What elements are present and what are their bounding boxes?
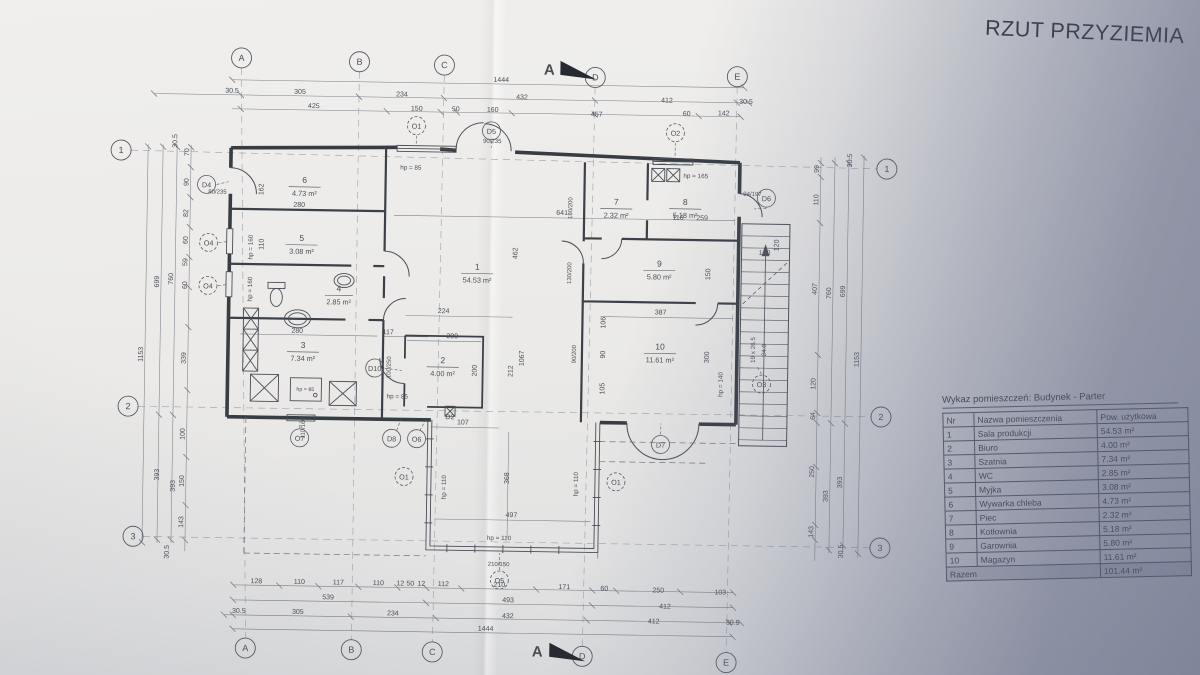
svg-text:160: 160: [487, 107, 499, 114]
svg-text:393: 393: [170, 480, 177, 492]
svg-text:hp = 110: hp = 110: [573, 472, 580, 497]
cell-nr: 2: [943, 440, 974, 455]
svg-text:50: 50: [452, 106, 460, 113]
opening-marker-label: O2: [671, 129, 681, 138]
svg-text:200: 200: [472, 365, 479, 377]
right-dimensions: 99 110 407 120 64 250 143 760 393 699 39…: [808, 153, 864, 558]
svg-text:hp = 140: hp = 140: [717, 372, 724, 397]
svg-text:30.5: 30.5: [172, 134, 179, 148]
svg-text:210/150: 210/150: [488, 562, 510, 568]
svg-text:200: 200: [446, 333, 458, 340]
cell-nr: 8: [945, 524, 976, 539]
svg-text:hp = 85: hp = 85: [387, 393, 409, 400]
svg-text:106: 106: [600, 317, 607, 329]
svg-text:hp = 160: hp = 160: [247, 276, 254, 301]
svg-text:150: 150: [179, 475, 186, 487]
svg-text:110: 110: [373, 580, 384, 587]
svg-text:110: 110: [813, 194, 820, 205]
svg-text:250: 250: [809, 466, 816, 478]
svg-text:393: 393: [154, 469, 161, 481]
svg-text:hp = 110: hp = 110: [441, 474, 448, 499]
opening-marker-label: D6: [762, 194, 771, 203]
svg-text:30.5: 30.5: [232, 608, 246, 615]
svg-text:hp = 110: hp = 110: [487, 535, 512, 542]
svg-text:412: 412: [661, 97, 673, 104]
room-label: 53.08 m²: [285, 233, 317, 256]
grid-col-label: E: [723, 658, 729, 668]
section-marker-bottom: A: [532, 643, 586, 662]
svg-text:300: 300: [704, 351, 711, 363]
svg-text:11.61 m²: 11.61 m²: [646, 355, 675, 364]
opening-marker-label: O1: [611, 478, 621, 487]
grid-col-label: C: [441, 60, 448, 70]
opening-marker-label: D8: [387, 434, 396, 443]
svg-text:90: 90: [600, 351, 607, 359]
svg-text:110: 110: [294, 579, 305, 586]
doors: [226, 119, 763, 461]
svg-text:117: 117: [333, 579, 344, 586]
svg-text:280: 280: [293, 202, 305, 209]
svg-text:30.5: 30.5: [225, 88, 239, 95]
grid-col-label: A: [238, 53, 244, 63]
svg-text:150: 150: [705, 268, 712, 280]
opening-markers: O1 D5 O2 D4 O4 O4 D10 O7 D8 O6 D7 O5 O3 …: [191, 113, 776, 593]
svg-text:hp = 85: hp = 85: [400, 164, 422, 171]
svg-text:180/200: 180/200: [568, 197, 574, 219]
svg-text:4.00 m²: 4.00 m²: [430, 369, 455, 378]
svg-text:305: 305: [292, 609, 304, 616]
total-area: 101.44 m²: [1100, 562, 1191, 578]
svg-text:30.5: 30.5: [164, 545, 171, 559]
svg-text:412: 412: [648, 618, 660, 625]
grid-col-label: C: [429, 647, 436, 657]
opening-marker-label: O3: [757, 380, 767, 389]
grid-row-label: 1: [884, 164, 889, 174]
top-dimensions: 1444 30.5 305 234 432 412 30.5 425 150 5…: [225, 73, 753, 121]
opening-marker-label: D7: [656, 440, 665, 449]
svg-text:493: 493: [502, 597, 514, 604]
svg-text:462: 462: [512, 247, 519, 259]
room-schedule: Wykaz pomieszczeń: Budynek - Parter Nr N…: [942, 389, 1182, 581]
svg-text:1: 1: [475, 262, 480, 272]
svg-text:393: 393: [837, 476, 844, 488]
opening-marker-label: O1: [412, 122, 422, 131]
svg-text:497: 497: [506, 512, 518, 519]
grid-col-label: E: [734, 72, 740, 82]
svg-text:280: 280: [291, 328, 303, 335]
svg-text:234: 234: [387, 610, 399, 617]
svg-text:hp = 165: hp = 165: [683, 173, 708, 180]
cell-nr: 5: [944, 482, 975, 497]
svg-text:60: 60: [683, 111, 691, 118]
svg-text:60: 60: [183, 236, 190, 244]
opening-marker-label: D2: [445, 412, 454, 421]
svg-text:5: 5: [299, 233, 304, 243]
svg-text:7: 7: [614, 197, 619, 207]
grid-row-label: 2: [878, 412, 883, 422]
svg-text:368: 368: [504, 472, 511, 484]
svg-text:1444: 1444: [493, 77, 509, 84]
grid-row-label: 3: [130, 531, 135, 541]
svg-text:30.5: 30.5: [739, 99, 753, 106]
svg-text:8: 8: [683, 197, 688, 207]
svg-text:112: 112: [438, 581, 449, 588]
opening-marker-label: D5: [487, 127, 496, 136]
svg-text:100/250: 100/250: [387, 356, 393, 378]
bottom-dimensions: 128 110 117 110 12 50 12 112 210 171 60 …: [232, 578, 740, 637]
svg-text:3.08 m²: 3.08 m²: [289, 247, 314, 256]
svg-text:30.5: 30.5: [726, 620, 740, 627]
room-label: 72.32 m²: [600, 197, 632, 220]
svg-text:4: 4: [337, 283, 342, 293]
svg-text:30.5: 30.5: [838, 544, 845, 558]
cell-nr: 7: [945, 510, 976, 525]
cell-nr: 10: [946, 552, 977, 567]
svg-text:171: 171: [558, 584, 570, 591]
svg-text:1067: 1067: [519, 350, 526, 366]
svg-text:432: 432: [502, 613, 514, 620]
svg-text:425: 425: [308, 103, 320, 110]
svg-text:6: 6: [302, 175, 307, 185]
svg-text:12: 12: [396, 580, 404, 587]
svg-text:7.34 m²: 7.34 m²: [290, 354, 315, 363]
svg-text:250: 250: [652, 587, 664, 594]
svg-text:224: 224: [438, 308, 450, 315]
svg-text:1153: 1153: [854, 352, 861, 367]
svg-text:19 x 26.5: 19 x 26.5: [750, 336, 757, 363]
exterior-stairs: [739, 224, 790, 447]
svg-text:150: 150: [411, 106, 423, 113]
cell-nr: 4: [944, 468, 975, 483]
grid-row-label: 3: [877, 543, 882, 553]
grid-col-label: B: [348, 645, 354, 655]
svg-text:143: 143: [178, 516, 185, 528]
svg-text:130/200: 130/200: [567, 262, 573, 284]
svg-text:107: 107: [457, 419, 469, 426]
svg-text:hp = 85: hp = 85: [296, 387, 314, 393]
cell-nr: 3: [944, 454, 975, 469]
svg-text:12: 12: [417, 581, 425, 588]
svg-text:116: 116: [672, 215, 683, 222]
svg-text:30.5: 30.5: [847, 154, 854, 168]
opening-marker-label: O4: [204, 238, 214, 247]
room-labels: 154.53 m² 24.00 m² 37.34 m² 42.85 m² 53.…: [284, 175, 702, 382]
cell-nr: 1: [943, 426, 974, 441]
svg-text:412: 412: [659, 604, 671, 611]
svg-text:120: 120: [810, 378, 817, 390]
svg-text:5.80 m²: 5.80 m²: [647, 272, 672, 281]
svg-text:2.32 m²: 2.32 m²: [604, 211, 629, 220]
svg-text:10: 10: [655, 341, 665, 351]
opening-marker-label: D4: [202, 180, 211, 189]
opening-marker-label: O5: [495, 576, 505, 585]
room-label: 64.73 m²: [288, 175, 320, 198]
total-label: Razem: [946, 564, 1100, 581]
svg-text:82: 82: [183, 209, 190, 217]
opening-marker-label: O7: [295, 434, 305, 443]
svg-text:699: 699: [840, 285, 847, 297]
svg-text:162: 162: [258, 183, 265, 195]
svg-text:50: 50: [406, 581, 414, 588]
room-label: 37.34 m²: [287, 340, 319, 363]
svg-text:212: 212: [508, 365, 515, 377]
svg-text:1153: 1153: [138, 347, 145, 362]
svg-text:60: 60: [182, 281, 189, 289]
room-label: 95.80 m²: [643, 258, 675, 281]
grid-row-label: 1: [119, 145, 124, 155]
grid-row-label: 2: [125, 401, 130, 411]
room-label: 24.00 m²: [427, 355, 459, 378]
svg-text:432: 432: [516, 94, 528, 101]
svg-text:234: 234: [396, 91, 408, 98]
opening-marker-label: D10: [368, 364, 381, 373]
inner-dimensions: 162 280 110 280 117 641 462 224 200 200 …: [253, 183, 781, 523]
col-header-nr: Nr: [943, 412, 974, 427]
left-dimensions: 70 90 82 60 59 60 339 100 150 143 699 39…: [135, 133, 192, 558]
svg-text:70: 70: [184, 148, 191, 156]
opening-marker-label: O1: [399, 472, 409, 481]
section-label: A: [532, 644, 543, 661]
svg-text:305: 305: [294, 89, 306, 96]
svg-text:117: 117: [383, 329, 394, 336]
dimension-lines: [138, 75, 869, 641]
svg-text:2.85 m²: 2.85 m²: [326, 297, 351, 306]
opening-marker-label: O6: [412, 435, 422, 444]
svg-text:105: 105: [599, 383, 606, 395]
svg-text:90/200: 90/200: [572, 344, 578, 363]
cell-nr: 6: [945, 496, 976, 511]
svg-text:143: 143: [808, 526, 815, 538]
svg-text:539: 539: [322, 594, 334, 601]
svg-text:120: 120: [774, 239, 781, 251]
svg-text:760: 760: [168, 273, 175, 285]
svg-text:9: 9: [657, 258, 662, 268]
svg-text:760: 760: [826, 287, 833, 299]
svg-text:hp = 160: hp = 160: [247, 234, 254, 259]
svg-text:387: 387: [655, 309, 667, 316]
svg-text:3: 3: [301, 340, 306, 350]
grid-col-label: B: [356, 57, 362, 67]
section-label: A: [544, 62, 555, 79]
room-label: 154.53 m²: [461, 261, 493, 284]
grid-col-label: D: [592, 72, 599, 82]
svg-text:60: 60: [600, 586, 608, 593]
svg-text:393: 393: [823, 490, 830, 502]
svg-text:90: 90: [184, 178, 191, 186]
svg-text:4.73 m²: 4.73 m²: [292, 189, 317, 198]
svg-text:100: 100: [180, 428, 187, 440]
svg-text:407: 407: [812, 283, 819, 295]
svg-text:142: 142: [718, 110, 730, 117]
svg-text:120: 120: [759, 250, 771, 257]
opening-marker-label: O4: [203, 281, 213, 290]
cell-nr: 9: [946, 538, 977, 553]
svg-text:457: 457: [591, 111, 603, 118]
svg-text:24.0: 24.0: [761, 343, 768, 356]
svg-text:339: 339: [181, 352, 188, 364]
svg-text:699: 699: [154, 276, 161, 288]
svg-text:103: 103: [714, 589, 726, 596]
room-schedule-table: Nr Nazwa pomieszczenia Pow. użytkowa 1Sa…: [942, 407, 1192, 582]
svg-text:64: 64: [810, 412, 817, 420]
svg-text:54.53 m²: 54.53 m²: [463, 275, 493, 284]
grid-col-label: A: [242, 643, 248, 653]
svg-text:59: 59: [182, 258, 189, 266]
svg-text:641: 641: [556, 210, 568, 217]
svg-text:259: 259: [696, 215, 708, 222]
room-label: 1011.61 m²: [644, 341, 676, 364]
svg-text:99: 99: [814, 165, 821, 173]
svg-text:1444: 1444: [478, 626, 494, 633]
svg-text:128: 128: [250, 578, 262, 585]
svg-text:110: 110: [259, 239, 266, 250]
svg-text:2: 2: [440, 355, 445, 365]
